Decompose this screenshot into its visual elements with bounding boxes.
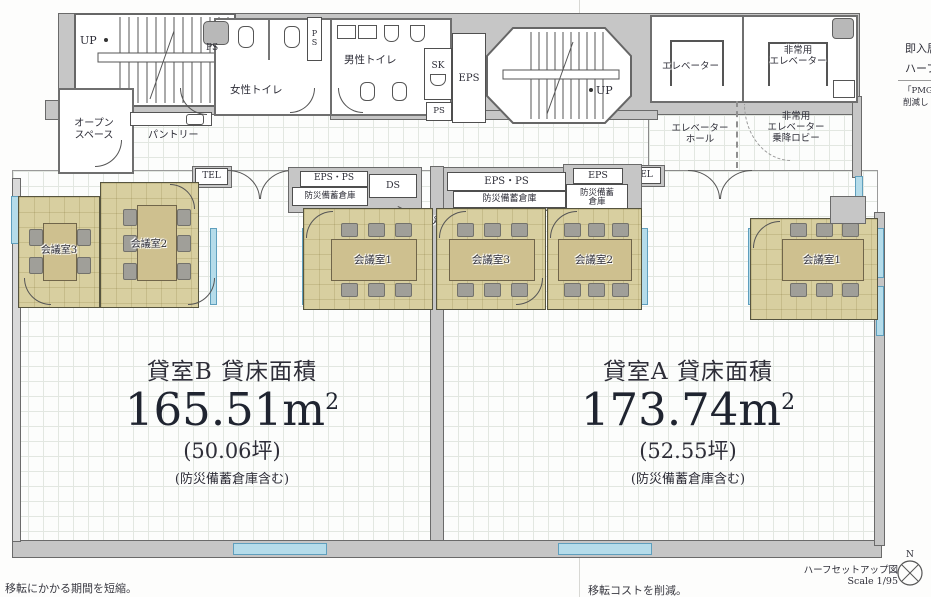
compass-n-label: N <box>906 550 914 560</box>
meeting-room-label: 会議室1 <box>782 252 862 267</box>
open-space-label: オープン スペース <box>60 118 128 141</box>
sk-sink-icon <box>430 74 446 86</box>
chair <box>588 223 605 237</box>
stair-up-label-left: UP <box>80 34 97 47</box>
ps-top-shaft <box>203 21 229 45</box>
urinal-counter <box>337 25 356 39</box>
toilet-fixture <box>392 82 407 101</box>
ps-top-label: PS <box>206 43 218 53</box>
right-outer-wall-upper <box>852 96 862 178</box>
chair <box>816 283 833 297</box>
urinal-counter <box>358 25 377 39</box>
side-text-rule <box>898 80 931 81</box>
toilet-stall-divider <box>268 20 270 60</box>
meeting-room-label: 会議室2 <box>113 235 185 250</box>
meeting-room-label: 会議室3 <box>23 241 95 256</box>
chair <box>395 283 412 297</box>
elevator-label: エレベーター <box>662 58 719 72</box>
tenant-a-tsubo: (52.55坪) <box>573 435 803 465</box>
toilet-fixture <box>284 26 300 48</box>
storage-box-center: 防災備蓄倉庫 <box>453 191 566 208</box>
mens-toilet-label: 男性トイレ <box>344 52 397 67</box>
chair <box>368 283 385 297</box>
pantry-label: パントリー <box>148 126 199 141</box>
chair <box>484 283 501 297</box>
eps-box-right: EPS <box>573 168 623 184</box>
tenant-b-area: 165.51m2 <box>117 386 347 433</box>
chair <box>790 283 807 297</box>
chair <box>612 223 629 237</box>
staircase-center: UP <box>485 26 633 125</box>
womens-toilet-label: 女性トイレ <box>230 82 283 97</box>
window-partition-b1 <box>210 228 217 305</box>
stair-up-label-center: UP <box>596 84 613 97</box>
floor-plan: UP オープン スペース パントリー 女性トイレ PS P S 男性トイレ SK… <box>0 0 931 597</box>
vent-shaft <box>832 18 854 39</box>
meeting-room-label: 会議室3 <box>450 252 532 267</box>
duct-block-a1 <box>830 196 866 224</box>
urinal-fixture <box>384 25 399 42</box>
chair <box>588 283 605 297</box>
chair <box>564 283 581 297</box>
tenant-b-tsubo: (50.06坪) <box>117 435 347 465</box>
chair <box>123 209 137 226</box>
chair <box>457 283 474 297</box>
chair <box>368 223 385 237</box>
ps-shaft-vertical: P S <box>307 17 322 61</box>
chair <box>29 257 43 274</box>
ps-small-shaft: PS <box>426 102 452 121</box>
window-bottom-2 <box>558 543 652 555</box>
emergency-elevator-label: 非常用 エレベーター <box>748 46 848 68</box>
chair <box>511 223 528 237</box>
tenant-a-area: 173.74m2 <box>573 386 803 433</box>
tenant-b-title: 貸室B 貸床面積 <box>117 352 347 386</box>
urinal-fixture <box>410 25 425 42</box>
window-bottom-1 <box>233 543 327 555</box>
chair <box>816 223 833 237</box>
drawing-title-block: ハーフセットアップ図 Scale 1/95 <box>770 562 898 587</box>
ds-box: DS <box>369 174 417 198</box>
tenant-b-text: 貸室B 貸床面積 165.51m2 (50.06坪) (防災備蓄倉庫含む) <box>117 352 347 487</box>
side-text-line4: 削減し <box>903 96 929 108</box>
tenant-b-note: (防災備蓄倉庫含む) <box>117 468 347 487</box>
meeting-room-label: 会議室1 <box>332 252 414 267</box>
tenant-a-text: 貸室A 貸床面積 173.74m2 (52.55坪) (防災備蓄倉庫含む) <box>573 352 803 487</box>
elevator-hall-label: エレベーター ホール <box>655 124 745 146</box>
bottom-right-note: 移転コストを削減。 <box>588 582 687 597</box>
bottom-left-note: 移転にかかる期間を短縮。 <box>5 580 137 596</box>
side-text-line3: 「PMG <box>903 84 931 96</box>
eps-ps-box-center: EPS・PS <box>447 172 566 191</box>
meeting-room-label: 会議室2 <box>554 252 634 267</box>
sup-2: 2 <box>781 390 795 415</box>
chair <box>612 283 629 297</box>
bottom-outer-wall <box>12 540 882 558</box>
chair <box>790 223 807 237</box>
chair <box>842 223 859 237</box>
eps-shaft: EPS <box>452 33 486 123</box>
chair <box>177 209 191 226</box>
pantry-sink <box>186 114 204 125</box>
window-partition-a1 <box>641 228 648 305</box>
chair <box>484 223 501 237</box>
tenant-a-note: (防災備蓄倉庫含む) <box>573 468 803 487</box>
chair <box>842 283 859 297</box>
eps-ps-box-left: EPS・PS <box>300 171 368 187</box>
sk-room: SK <box>424 48 452 100</box>
side-text-line1: 即入居 <box>905 40 931 56</box>
tel-left-box: TEL <box>195 168 228 185</box>
compass-icon: N <box>893 546 927 590</box>
storage-box-left: 防災備蓄倉庫 <box>292 187 368 206</box>
chair <box>341 283 358 297</box>
chair <box>395 223 412 237</box>
side-text-line2: ハーフ <box>905 60 931 76</box>
lobby-dashed-partition <box>736 101 739 168</box>
drawing-title: ハーフセットアップ図 <box>770 562 898 576</box>
drawing-scale: Scale 1/95 <box>770 576 898 587</box>
chair <box>341 223 358 237</box>
chair <box>77 257 91 274</box>
small-duct-box <box>833 80 855 98</box>
sup-2: 2 <box>325 390 339 415</box>
tenant-a-title: 貸室A 貸床面積 <box>573 352 803 386</box>
toilet-fixture <box>238 26 254 48</box>
chair <box>123 263 137 280</box>
